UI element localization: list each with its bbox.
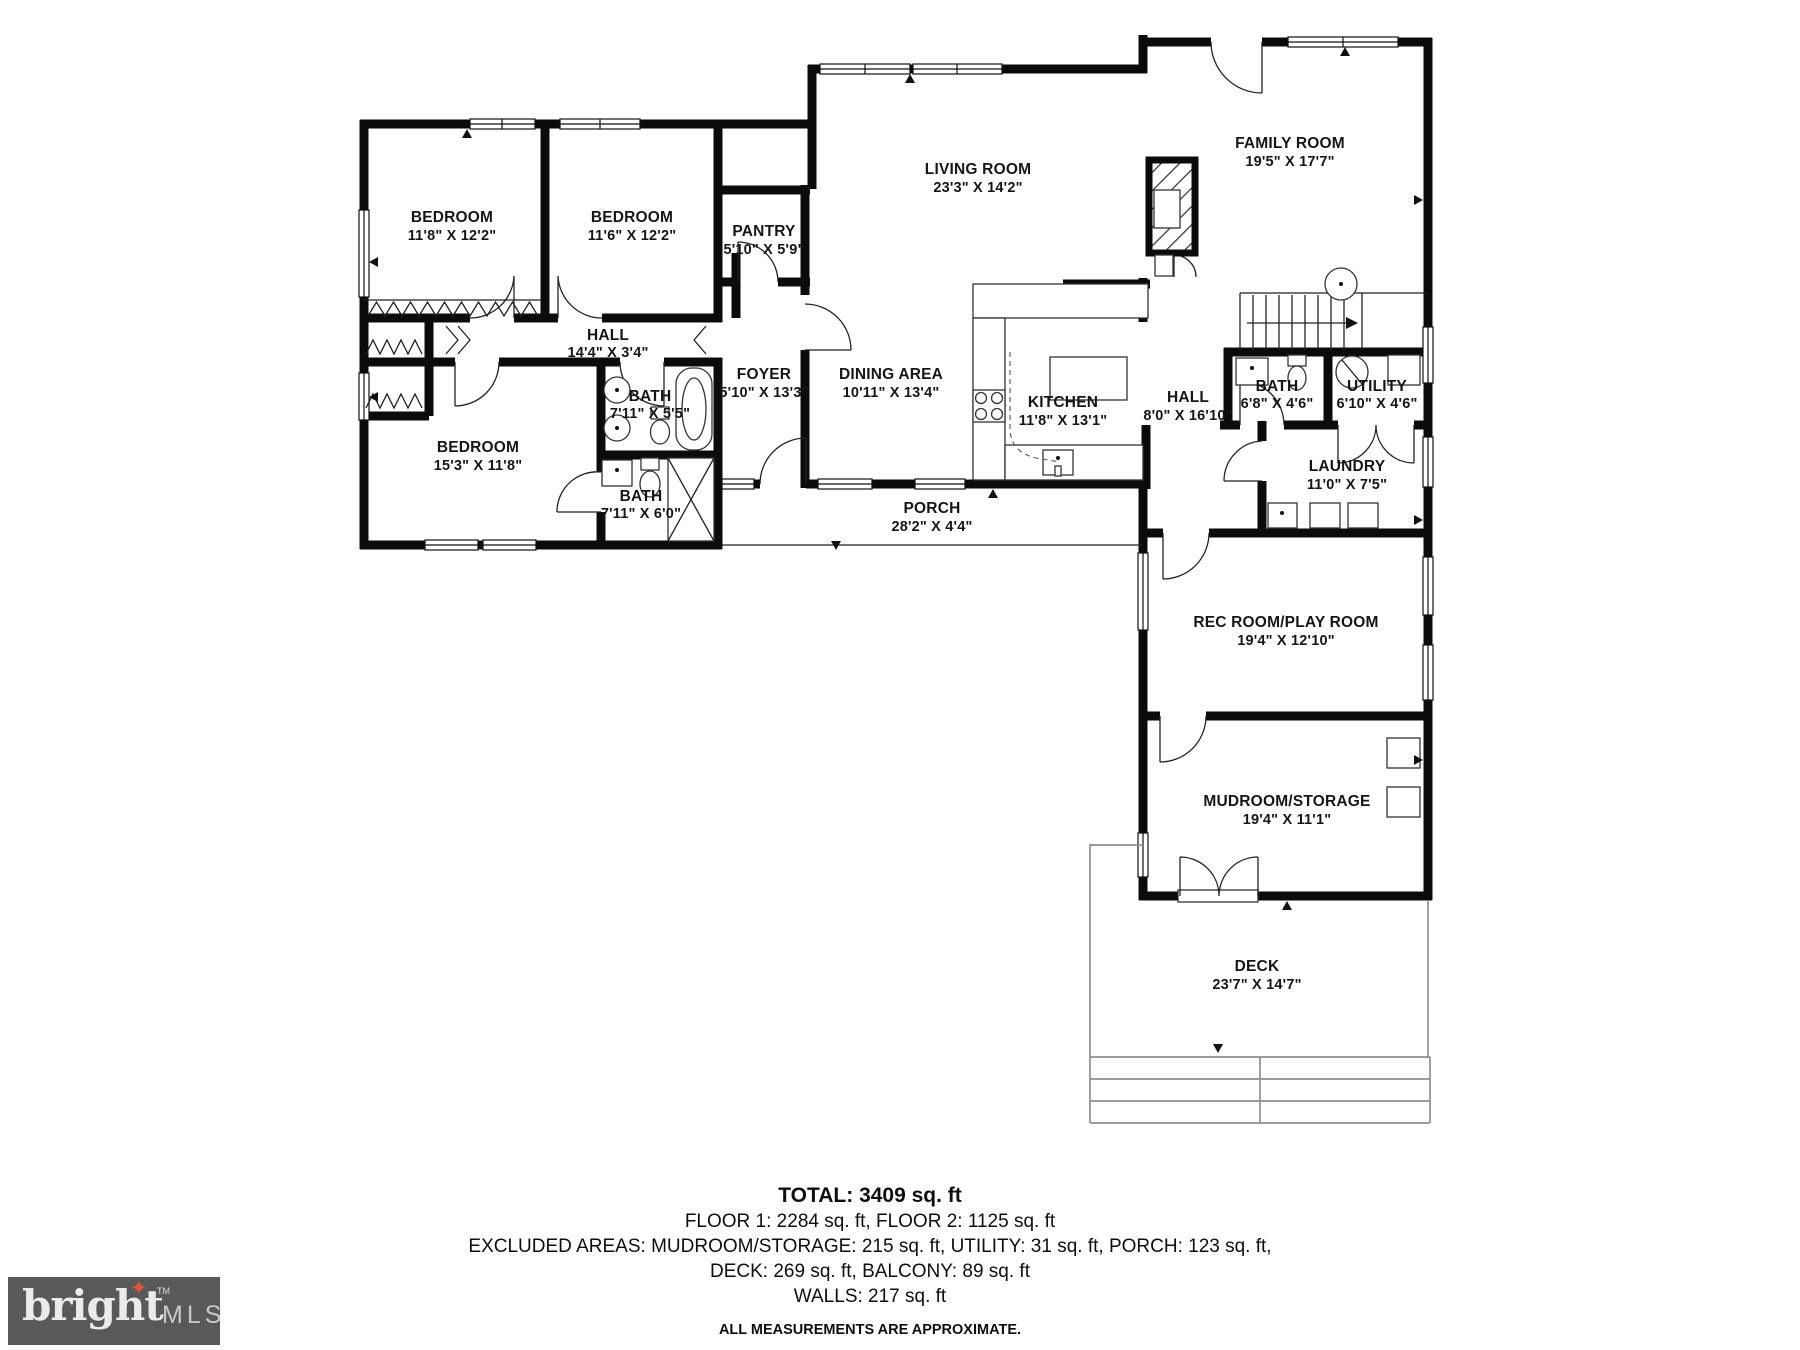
room-labels: BEDROOM 11'8" X 12'2" BEDROOM 11'6" X 12… — [408, 135, 1418, 993]
label-hall2-name: HALL — [1167, 389, 1209, 406]
label-bath1-name: BATH — [629, 388, 672, 405]
fireplace — [1149, 160, 1195, 276]
window-right-wall-4 — [1423, 645, 1433, 700]
bath1-toilet — [651, 420, 670, 444]
door-fireplace-niche — [1174, 255, 1196, 277]
bath3-toilet-tank — [1288, 355, 1306, 366]
door-front-porch — [760, 438, 806, 484]
washer — [1310, 503, 1340, 528]
bath2-sink — [602, 460, 632, 486]
window-porch-1 — [722, 479, 754, 489]
label-utility-name: UTILITY — [1347, 378, 1407, 395]
door-hall-laundry — [1224, 441, 1262, 481]
label-deck-name: DECK — [1235, 958, 1280, 975]
label-porch-dims: 28'2" X 4'4" — [891, 519, 972, 535]
window-porch-2 — [818, 479, 872, 489]
label-bedroom3-dims: 15'3" X 11'8" — [434, 458, 523, 474]
label-bath3-dims: 6'8" X 4'6" — [1241, 396, 1314, 412]
label-hall1-name: HALL — [587, 327, 629, 344]
label-hall1-dims: 14'4" X 3'4" — [567, 345, 648, 361]
summary-excluded-1: EXCLUDED AREAS: MUDROOM/STORAGE: 215 sq.… — [0, 1234, 1740, 1259]
label-bedroom3-name: BEDROOM — [437, 439, 519, 456]
mudroom-shelf-2 — [1387, 787, 1420, 817]
door-family-entry — [1211, 42, 1262, 93]
label-kitchen-name: KITCHEN — [1028, 394, 1098, 411]
label-rec-name: REC ROOM/PLAY ROOM — [1193, 614, 1378, 631]
label-bedroom2-dims: 11'6" X 12'2" — [588, 228, 677, 244]
door-bath2 — [557, 472, 601, 512]
kitchen-bar-counter — [973, 284, 1148, 318]
label-laundry-dims: 11'0" X 7'5" — [1307, 477, 1387, 493]
door-bedroom2 — [558, 276, 602, 318]
door-rec-room — [1163, 533, 1209, 579]
label-bath2-dims: 7'11" X 6'0" — [601, 506, 681, 522]
summary-excluded-2: DECK: 269 sq. ft, BALCONY: 89 sq. ft — [0, 1259, 1740, 1284]
kitchen-fixtures — [973, 284, 1148, 480]
bath2-toilet-tank — [641, 458, 659, 470]
window-mudroom-left — [1138, 833, 1148, 877]
label-deck-dims: 23'7" X 14'7" — [1212, 977, 1301, 993]
window-left-wall-1 — [359, 210, 369, 297]
label-bedroom1-name: BEDROOM — [411, 209, 493, 226]
summary-total: TOTAL: 3409 sq. ft — [0, 1183, 1740, 1209]
window-rec-left — [1138, 553, 1148, 630]
window-living-top-2 — [913, 64, 1002, 74]
floorplan-drawing: BEDROOM 11'8" X 12'2" BEDROOM 11'6" X 12… — [0, 0, 1800, 1350]
closet-rod-hall-top — [366, 340, 422, 354]
window-bedroom3-bottom-2 — [483, 540, 536, 550]
stairs — [1240, 268, 1428, 350]
door-mudroom — [1160, 716, 1206, 762]
label-living-dims: 23'3" X 14'2" — [933, 180, 1022, 196]
window-bedroom1-top — [470, 119, 535, 129]
bright-mls-logo: bright ✦ TM MLS — [8, 1277, 220, 1345]
window-right-wall-1 — [1423, 327, 1433, 383]
laundry-sink — [1268, 503, 1297, 528]
label-foyer-dims: 5'10" X 13'3" — [719, 385, 808, 401]
floorplan-canvas: BEDROOM 11'8" X 12'2" BEDROOM 11'6" X 12… — [0, 0, 1800, 1350]
stairs-direction-arrow — [1346, 317, 1358, 329]
label-utility-dims: 6'10" X 4'6" — [1336, 396, 1417, 412]
area-summary: TOTAL: 3409 sq. ft FLOOR 1: 2284 sq. ft,… — [0, 1183, 1740, 1338]
label-porch-name: PORCH — [904, 500, 961, 517]
kitchen-counter-bottom — [1005, 445, 1143, 480]
summary-floors: FLOOR 1: 2284 sq. ft, FLOOR 2: 1125 sq. … — [0, 1209, 1740, 1234]
window-left-wall-2 — [359, 373, 369, 420]
label-dining-name: DINING AREA — [839, 366, 943, 383]
label-bath3-name: BATH — [1256, 378, 1299, 395]
mudroom-fixtures — [1387, 738, 1420, 817]
summary-disclaimer: ALL MEASUREMENTS ARE APPROXIMATE. — [0, 1322, 1740, 1338]
window-right-wall-3 — [1423, 557, 1433, 615]
door-bedroom1 — [470, 276, 514, 318]
label-dining-dims: 10'11" X 13'4" — [843, 385, 940, 401]
label-bath2-name: BATH — [620, 488, 663, 505]
label-foyer-name: FOYER — [737, 366, 791, 383]
window-living-top-1 — [820, 64, 910, 74]
label-bath1-dims: 7'11" X 5'5" — [610, 406, 690, 422]
window-porch-3 — [915, 479, 965, 489]
label-pantry-name: PANTRY — [732, 223, 796, 240]
label-bedroom1-dims: 11'8" X 12'2" — [408, 228, 497, 244]
label-rec-dims: 19'4" X 12'10" — [1237, 633, 1335, 649]
label-living-name: LIVING ROOM — [925, 161, 1031, 178]
window-bedroom2-top — [560, 119, 640, 129]
label-mudroom-dims: 19'4" X 11'1" — [1243, 812, 1332, 828]
window-right-wall-2 — [1423, 437, 1433, 487]
label-pantry-dims: 5'10" X 5'9" — [723, 242, 804, 258]
label-hall2-dims: 8'0" X 16'10" — [1143, 408, 1232, 424]
label-family-name: FAMILY ROOM — [1235, 135, 1345, 152]
logo-mls-text: MLS — [162, 1301, 225, 1330]
door-bedroom3 — [455, 362, 499, 406]
window-family-top — [1288, 37, 1398, 47]
label-laundry-name: LAUNDRY — [1309, 458, 1386, 475]
dryer — [1348, 503, 1378, 528]
logo-sparkle-icon: ✦ — [130, 1276, 148, 1301]
label-kitchen-dims: 11'8" X 13'1" — [1019, 413, 1108, 429]
summary-walls: WALLS: 217 sq. ft — [0, 1284, 1740, 1309]
label-mudroom-name: MUDROOM/STORAGE — [1203, 793, 1370, 810]
door-foyer-dining — [805, 304, 851, 350]
label-family-dims: 19'5" X 17'7" — [1245, 154, 1334, 170]
door-mudroom-threshold — [1178, 890, 1258, 902]
logo-trademark: TM — [157, 1286, 170, 1296]
label-bedroom2-name: BEDROOM — [591, 209, 673, 226]
laundry-fixtures — [1268, 503, 1378, 528]
window-bedroom3-bottom — [425, 540, 478, 550]
